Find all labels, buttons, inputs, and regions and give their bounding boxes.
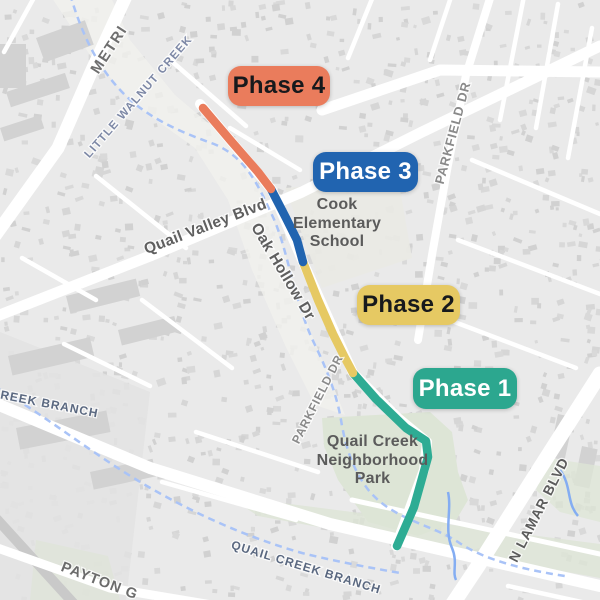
phase-2-badge: Phase 2: [357, 285, 460, 325]
phase-1-badge: Phase 1: [413, 368, 517, 409]
cook-elementary-school-label: Cook Elementary School: [282, 196, 392, 252]
phase-2-badge-label: Phase 2: [362, 291, 455, 319]
phase-3-badge-label: Phase 3: [319, 158, 412, 186]
phase-4-badge: Phase 4: [228, 66, 330, 106]
phase-4-badge-label: Phase 4: [233, 72, 326, 100]
quail-creek-neighborhood-park-label: Quail Creek Neighborhood Park: [300, 433, 445, 489]
phase-1-badge-label: Phase 1: [419, 375, 512, 403]
map-canvas: METRILITTLE WALNUT CREEKQuail Valley Blv…: [0, 0, 600, 600]
phase-3-badge: Phase 3: [313, 152, 418, 192]
